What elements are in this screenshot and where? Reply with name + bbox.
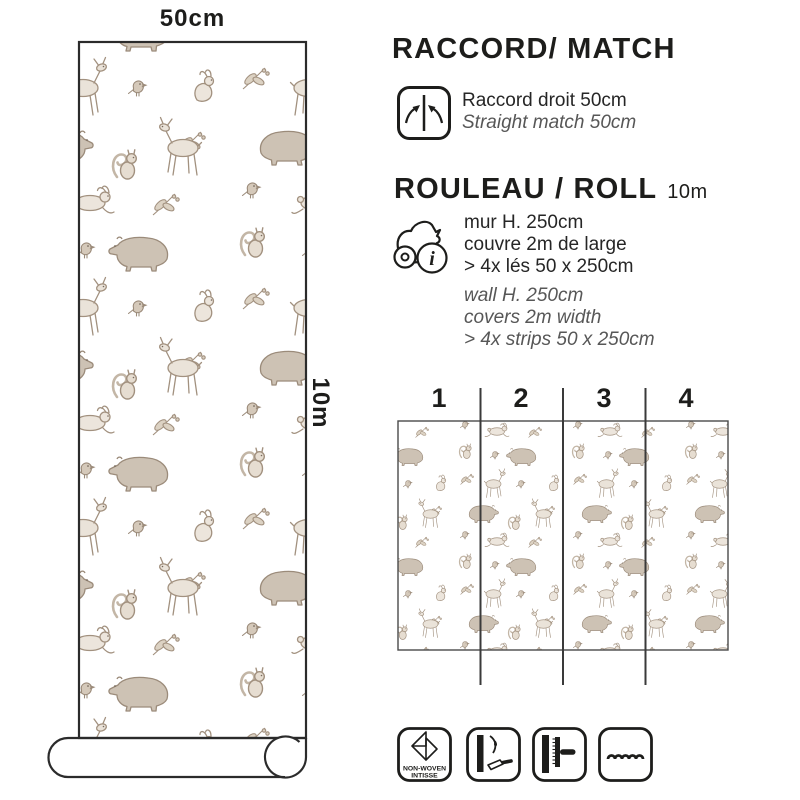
paste-the-wall-icon <box>466 727 521 782</box>
roll-cylinder <box>49 738 307 777</box>
roll-width-label: 50cm <box>79 5 306 33</box>
wallpaper-spec-sheet: 50cm 10m RACCORD/ MATCH Raccord droit 50… <box>0 0 800 800</box>
non-woven-fold-icon: NON-WOVEN INTISSE <box>397 727 452 782</box>
roll-en-line-1: wall H. 250cm <box>464 285 655 307</box>
wavy-line-icon <box>598 727 653 782</box>
roll-info-icon: i <box>392 217 458 277</box>
wallpaper-roll-illustration <box>49 42 307 777</box>
strips-diagram-graphic <box>398 388 728 685</box>
strip-number-3: 3 <box>584 383 624 414</box>
roll-section-title: ROULEAU / ROLL10m <box>394 173 708 206</box>
match-line-en: Straight match 50cm <box>462 112 636 134</box>
roll-fr-line-3: > 4x lés 50 x 250cm <box>464 256 634 278</box>
roll-length-label: 10m <box>304 368 334 438</box>
roll-fr-line-2: couvre 2m de large <box>464 234 634 256</box>
strip-number-4: 4 <box>666 383 706 414</box>
straight-match-arrows-icon <box>397 86 451 140</box>
strip-number-2: 2 <box>501 383 541 414</box>
match-line-fr: Raccord droit 50cm <box>462 90 636 112</box>
roll-specs-fr: mur H. 250cm couvre 2m de large > 4x lés… <box>464 212 634 278</box>
smoothing-spatula-icon <box>532 727 587 782</box>
roll-curl <box>265 736 306 777</box>
roll-length-value: 10m <box>667 181 707 203</box>
non-woven-label-fr: INTISSE <box>411 773 438 780</box>
non-woven-label-en: NON-WOVEN <box>403 766 446 773</box>
roll-en-line-3: > 4x strips 50 x 250cm <box>464 329 655 351</box>
strip-number-1: 1 <box>419 383 459 414</box>
roll-title-text: ROULEAU / ROLL <box>394 173 657 205</box>
roll-specs-en: wall H. 250cm covers 2m width > 4x strip… <box>464 285 655 351</box>
roll-en-line-2: covers 2m width <box>464 307 655 329</box>
match-section-title: RACCORD/ MATCH <box>392 33 676 66</box>
svg-text:i: i <box>429 248 435 270</box>
roll-fr-line-1: mur H. 250cm <box>464 212 634 234</box>
match-text-block: Raccord droit 50cm Straight match 50cm <box>462 90 636 134</box>
